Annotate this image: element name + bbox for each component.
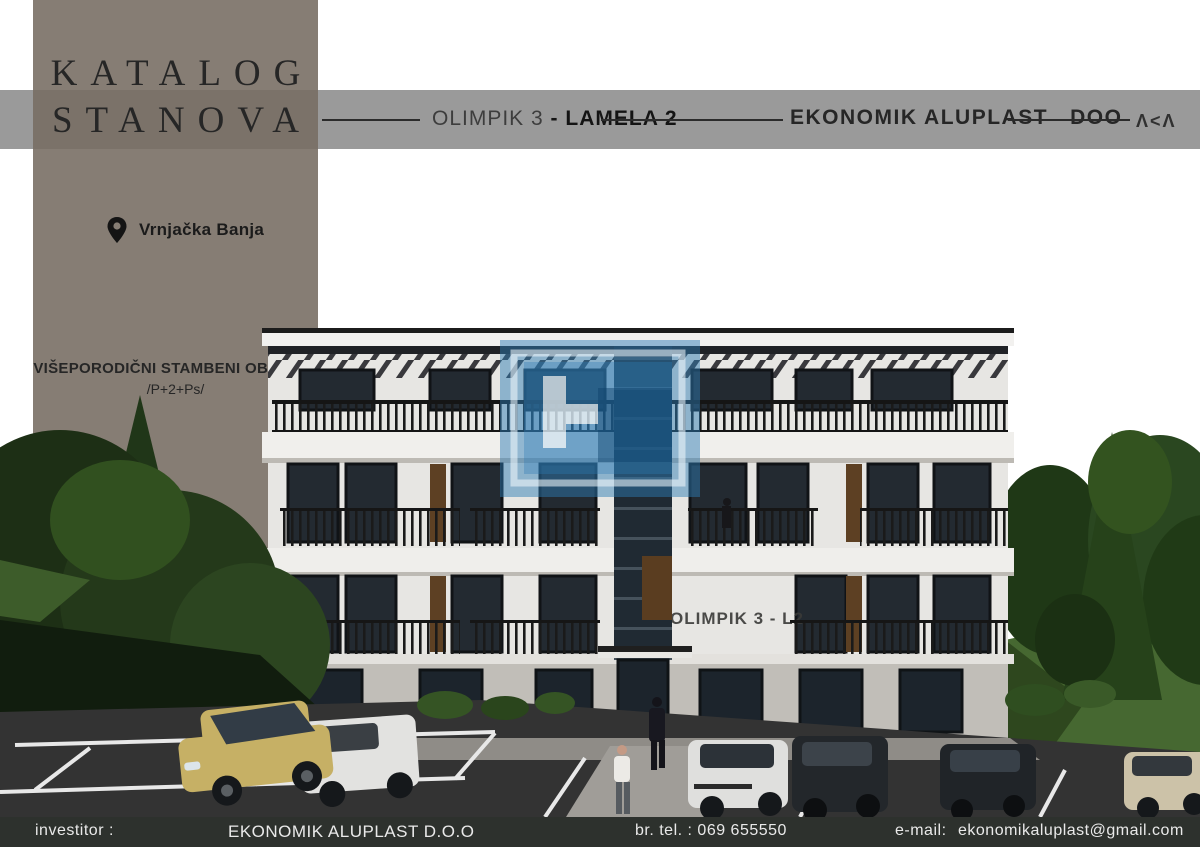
catalog-title: KATALOG STANOVA [33,50,318,144]
email-label: e-mail: [895,822,947,840]
balcony-person [722,498,731,528]
catalog-title-line2: STANOVA [33,97,318,144]
header-divider-middle [601,119,783,121]
header-divider-left [322,119,420,121]
email-value: ekonomikaluplast@gmail.com [958,822,1184,840]
car-dark-middle [792,736,888,817]
building-sign: OLIMPIK 3 - L2 [670,609,804,628]
car-beige-right [1124,752,1200,817]
aka-logo-icon: Λ<Λ [1136,111,1177,132]
watermark-logo [500,340,700,497]
catalog-page: OLIMPIK 3 - LAMELA 2 EKONOMIK ALUPLASTDO… [0,0,1200,847]
company-name: EKONOMIK ALUPLAST [790,106,1048,129]
project-name: OLIMPIK 3 [432,107,544,130]
company-suffix: DOO [1070,106,1122,129]
header-divider-right [1008,119,1130,121]
company-title: EKONOMIK ALUPLASTDOO [790,106,1122,130]
car-white-middle [688,740,788,817]
car-dark-right [940,744,1036,817]
investor-label: investitor : [35,822,114,840]
building-render: OLIMPIK 3 - L2 [0,148,1200,817]
footer-bar: investitor : EKONOMIK ALUPLAST D.O.O br.… [0,817,1200,847]
phone-text: br. tel. : 069 655550 [635,822,787,840]
catalog-title-line1: KATALOG [33,50,318,97]
investor-value: EKONOMIK ALUPLAST D.O.O [228,822,474,842]
